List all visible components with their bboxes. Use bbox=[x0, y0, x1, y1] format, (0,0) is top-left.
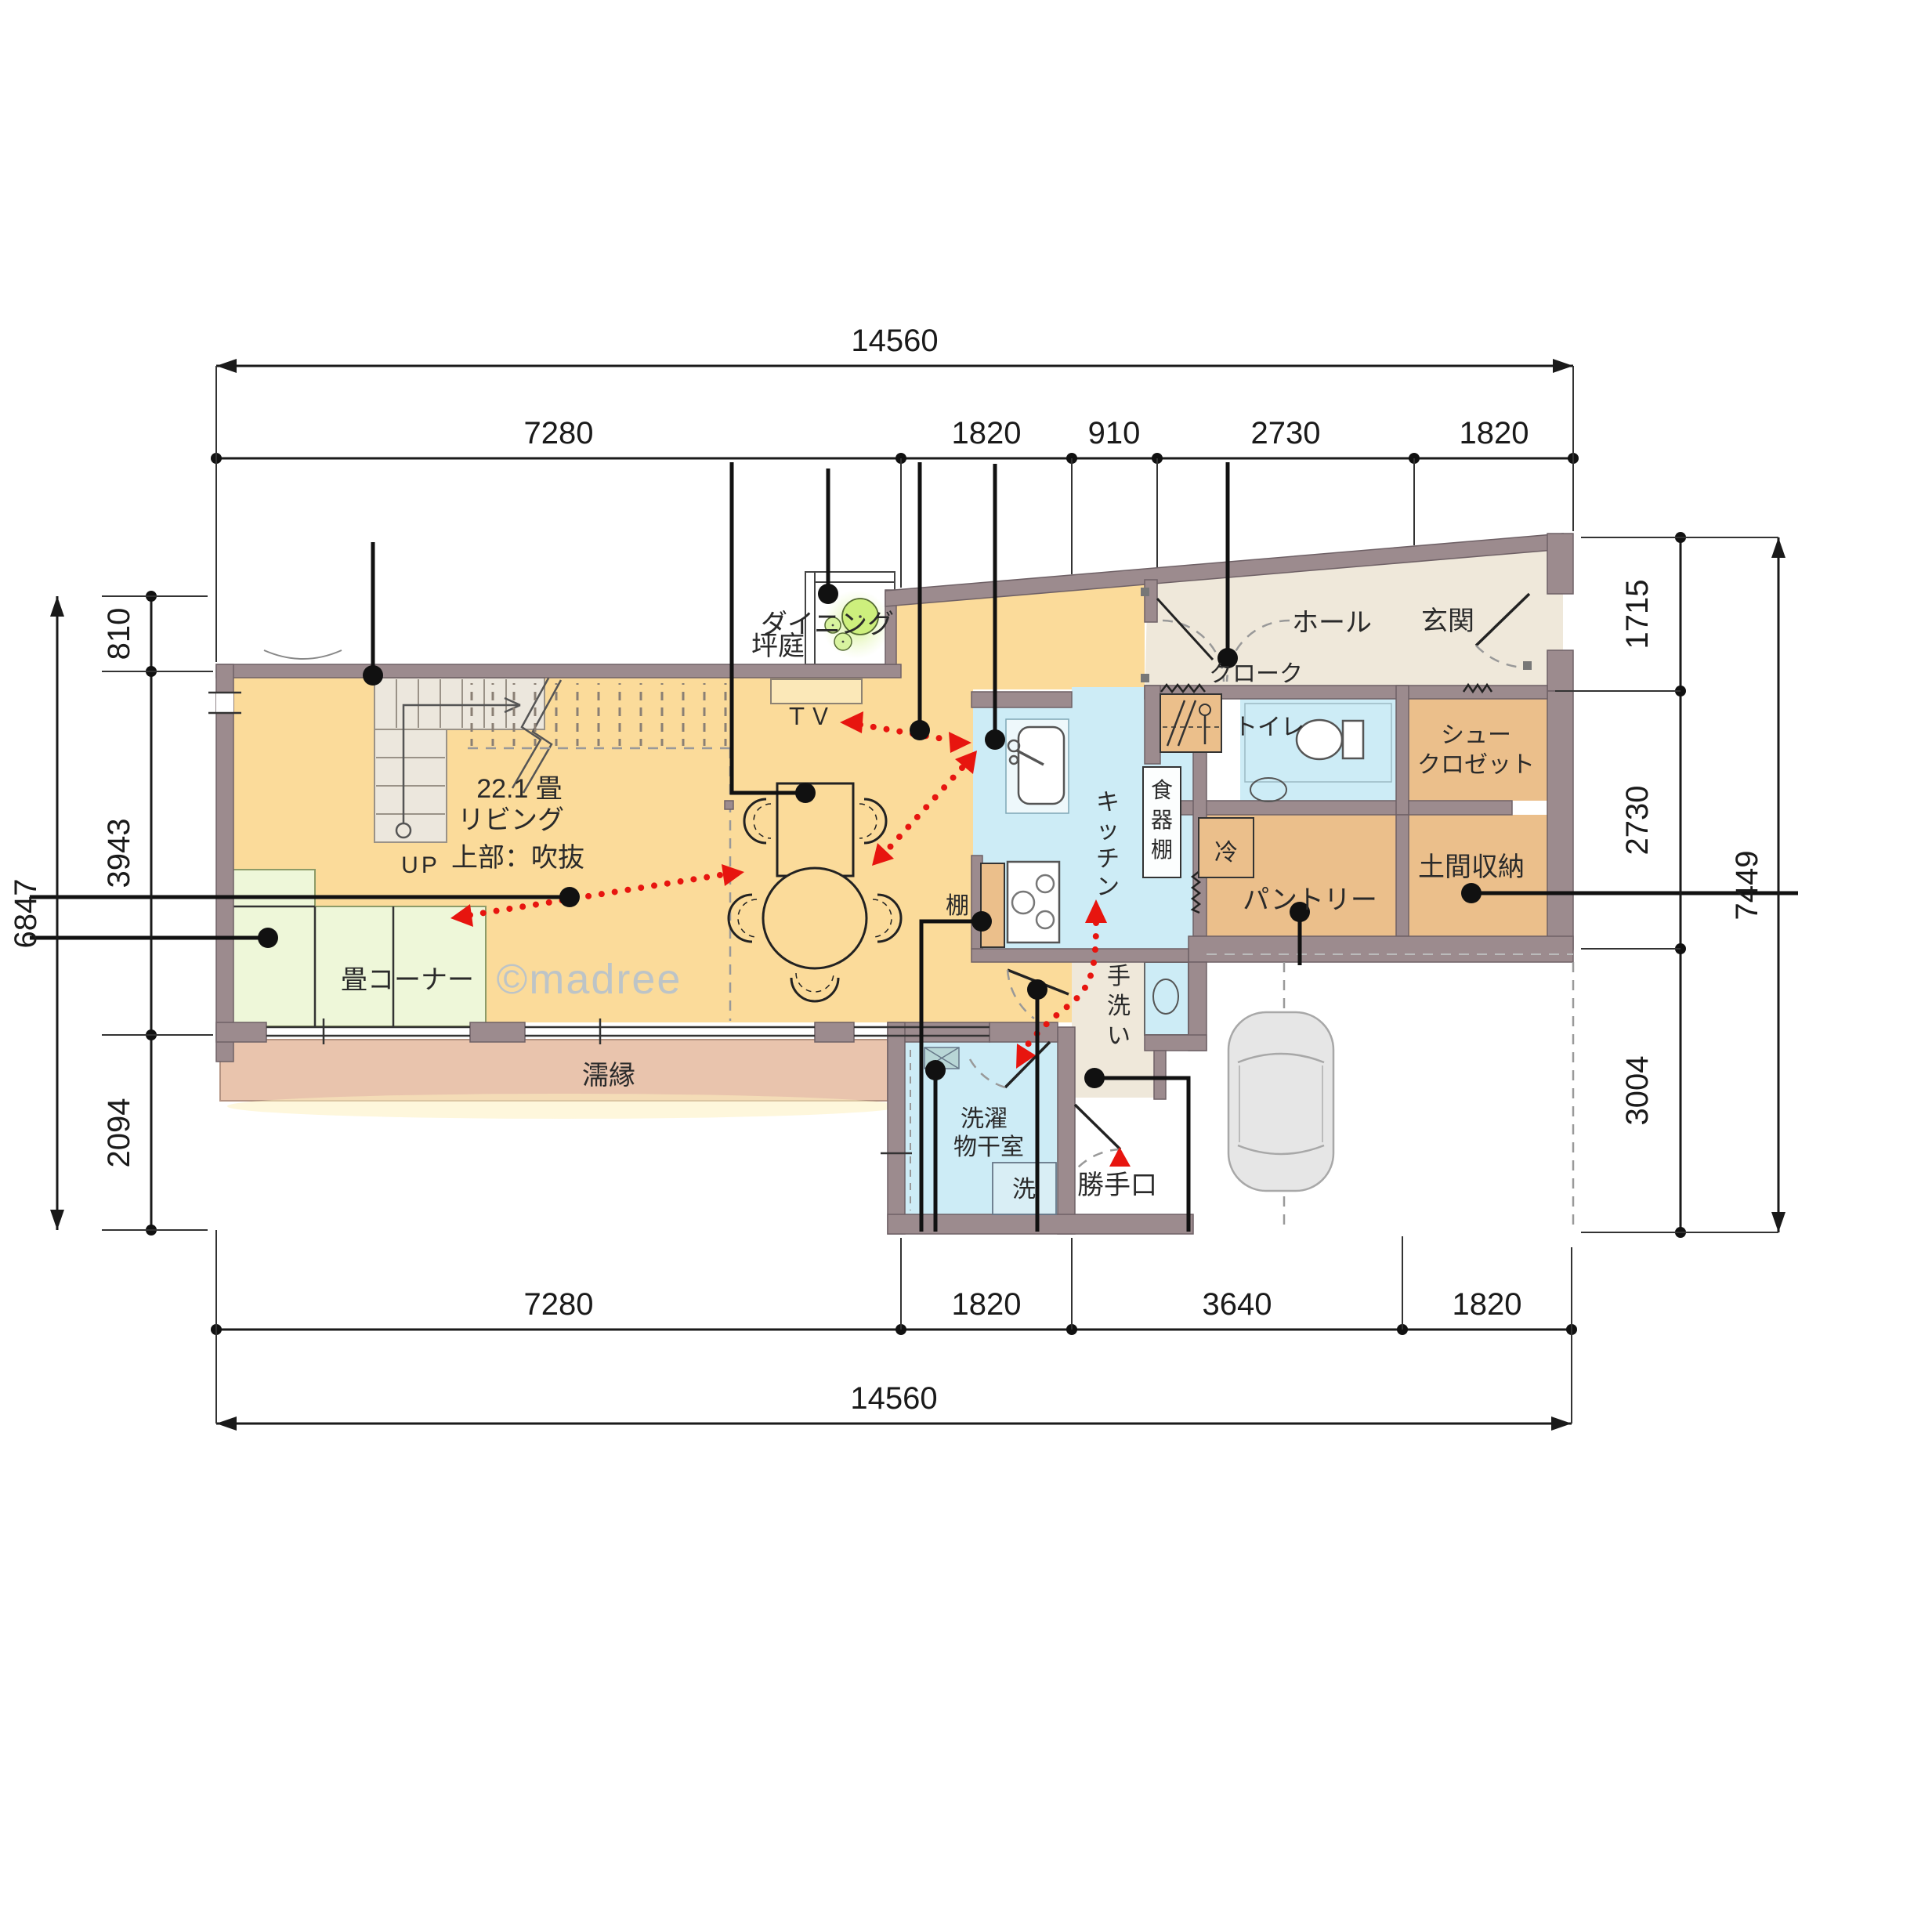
veranda-floor bbox=[220, 1040, 888, 1101]
svg-text:い: い bbox=[1107, 1023, 1131, 1049]
stairs-up-label: UP bbox=[401, 852, 440, 878]
dim-top-seg: 1820 bbox=[1460, 416, 1529, 450]
veranda-label: 濡縁 bbox=[582, 1061, 635, 1091]
floorplan-page: 14560 7280 1820 910 2730 1820 7280 1820 … bbox=[0, 0, 1932, 1932]
kitchen-sink bbox=[1018, 727, 1064, 804]
svg-text:洗: 洗 bbox=[1107, 993, 1131, 1019]
void-hatch bbox=[468, 683, 729, 746]
dim-bottom-seg: 3640 bbox=[1203, 1287, 1272, 1322]
pantry-label: パントリー bbox=[1243, 885, 1377, 915]
dim-left-seg: 3943 bbox=[102, 819, 136, 888]
laundry-label-2: 物干室 bbox=[953, 1134, 1024, 1160]
living-void-note: 上部：吹抜 bbox=[451, 843, 584, 873]
dim-left-seg: 2094 bbox=[102, 1098, 136, 1168]
tv-board bbox=[771, 679, 862, 704]
dim-bottom-total: 14560 bbox=[850, 1381, 937, 1416]
callout-shelf bbox=[971, 911, 992, 932]
svg-text:手: 手 bbox=[1107, 964, 1131, 990]
dim-top-seg: 910 bbox=[1088, 416, 1141, 450]
dish-shelf-label: 食 器 棚 bbox=[1151, 778, 1173, 862]
backdoor-label: 勝手口 bbox=[1077, 1170, 1157, 1200]
dim-bottom-seg: 7280 bbox=[524, 1287, 594, 1322]
floorplan-canvas: 14560 7280 1820 910 2730 1820 7280 1820 … bbox=[0, 0, 1932, 1932]
dim-top-total: 14560 bbox=[851, 324, 938, 358]
hall-label: ホール bbox=[1292, 608, 1372, 638]
callout-doma bbox=[1461, 883, 1482, 903]
car-icon bbox=[1228, 1012, 1333, 1191]
callout-tatami bbox=[258, 928, 278, 948]
svg-text:ッ: ッ bbox=[1096, 818, 1120, 844]
dim-right-seg: 1715 bbox=[1620, 580, 1655, 649]
dim-left-total: 6847 bbox=[9, 879, 43, 949]
callout-laundry-door bbox=[1027, 979, 1047, 1000]
dim-top-seg: 2730 bbox=[1251, 416, 1321, 450]
callout-sink bbox=[985, 729, 1005, 750]
dining-table bbox=[777, 783, 853, 876]
entrance-label: 玄関 bbox=[1421, 606, 1474, 636]
svg-text:棚: 棚 bbox=[1151, 838, 1173, 862]
cloak-label: クローク bbox=[1209, 661, 1303, 687]
tatami-label: 畳コーナー bbox=[341, 965, 474, 995]
callout-stairs bbox=[363, 665, 383, 686]
veranda-glow bbox=[227, 1094, 901, 1119]
svg-text:ン: ン bbox=[1096, 874, 1120, 900]
dim-left-seg: 810 bbox=[102, 608, 136, 660]
pillar bbox=[725, 801, 733, 809]
dim-top-seg: 7280 bbox=[524, 416, 594, 450]
callout-table bbox=[795, 783, 816, 803]
callout-dining bbox=[910, 720, 930, 740]
garage bbox=[1207, 954, 1573, 1232]
dim-bottom-seg: 1820 bbox=[1453, 1287, 1522, 1322]
shoe-closet-label-1: シュー bbox=[1441, 722, 1511, 748]
cloak-closet bbox=[1160, 694, 1221, 752]
handwash-label: 手 洗 い bbox=[1107, 964, 1131, 1049]
room-shoe-closet bbox=[1409, 699, 1547, 801]
toilet-label: トイレ bbox=[1234, 715, 1304, 740]
shoe-closet-label-2: クロゼット bbox=[1417, 752, 1535, 778]
laundry-label-1: 洗濯 bbox=[961, 1106, 1008, 1132]
dim-right-total: 7449 bbox=[1730, 851, 1764, 921]
doma-label: 土間収納 bbox=[1418, 852, 1525, 882]
dim-right-seg: 3004 bbox=[1620, 1056, 1655, 1126]
shelf-box bbox=[981, 863, 1004, 947]
svg-text:キ: キ bbox=[1096, 790, 1120, 816]
callout-courtyard bbox=[818, 584, 838, 604]
living-size-label: 22.1 畳 bbox=[476, 774, 563, 804]
washer-label: 洗 bbox=[1012, 1177, 1036, 1203]
callout-backdoor bbox=[1084, 1068, 1105, 1088]
svg-text:器: 器 bbox=[1151, 808, 1173, 832]
callout-living bbox=[559, 887, 580, 907]
fridge-label: 冷 bbox=[1214, 840, 1238, 866]
living-label: リビング bbox=[458, 805, 564, 835]
dim-bottom-seg: 1820 bbox=[952, 1287, 1022, 1322]
svg-text:チ: チ bbox=[1096, 846, 1120, 872]
room-handwash bbox=[1145, 962, 1189, 1035]
tv-label: ＴＶ bbox=[785, 704, 832, 730]
courtyard-label: 坪庭 bbox=[751, 631, 805, 661]
callout-drying bbox=[925, 1060, 946, 1080]
dim-top-seg: 1820 bbox=[952, 416, 1022, 450]
shelf-label: 棚 bbox=[946, 893, 969, 919]
dim-right-seg: 2730 bbox=[1620, 786, 1655, 856]
toilet-tank bbox=[1343, 721, 1363, 758]
watermark: ©madree bbox=[497, 956, 682, 1003]
svg-text:食: 食 bbox=[1151, 778, 1173, 802]
canopy-arc bbox=[264, 650, 342, 659]
round-table bbox=[763, 868, 867, 968]
